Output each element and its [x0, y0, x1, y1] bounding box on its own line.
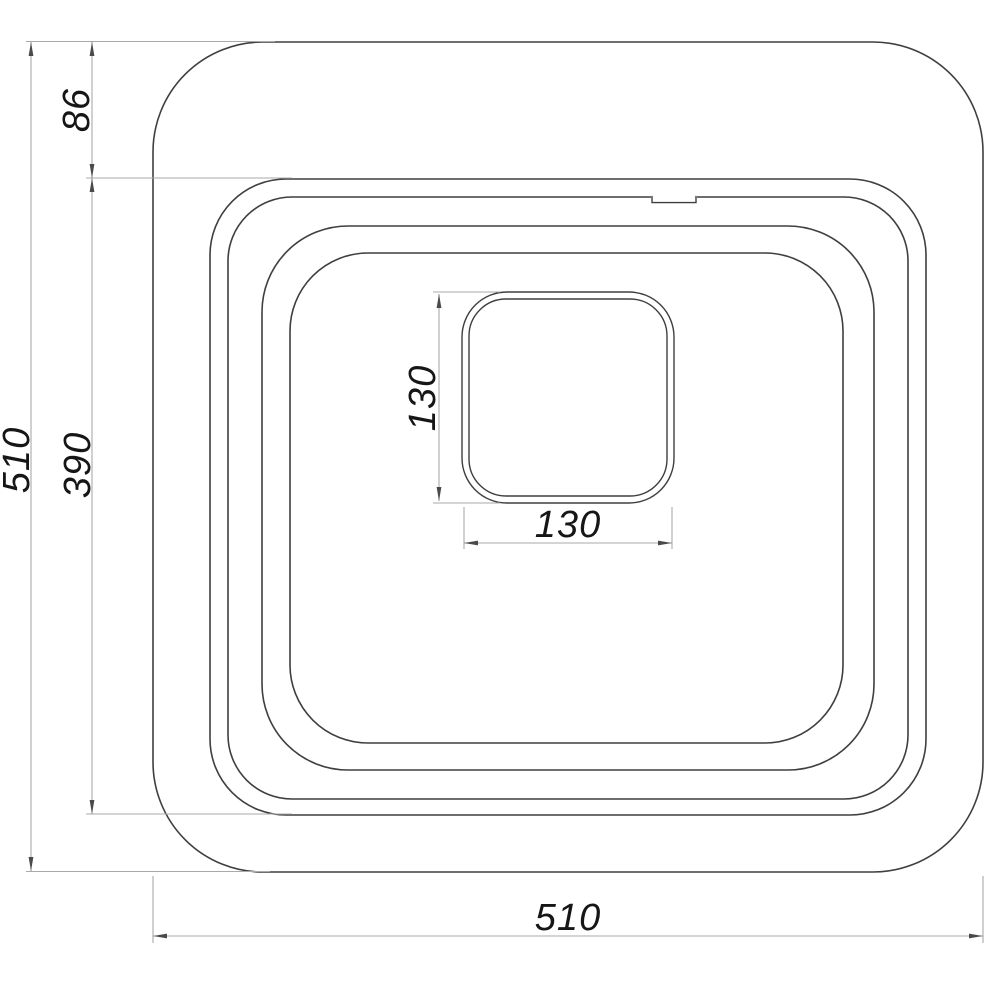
dim-label-drain-width: 130: [535, 504, 601, 546]
dimension-arrow: [29, 42, 34, 56]
dim-label-drain-height: 130: [402, 365, 444, 431]
dim-label-rim-height: 390: [57, 432, 99, 498]
drain-outer-outline: [462, 292, 674, 503]
dimension-arrow: [153, 934, 167, 939]
sink-outer-outline: [153, 42, 983, 872]
dimension-lines: [26, 42, 983, 944]
dimension-arrow: [658, 541, 672, 546]
dimension-arrow: [969, 934, 983, 939]
dimension-arrow: [437, 487, 442, 501]
dim-label-overall-height: 510: [0, 427, 38, 493]
bowl-outer-outline: [262, 226, 874, 770]
dim-label-overall-width: 510: [535, 897, 601, 939]
dimension-arrow: [90, 164, 95, 178]
dim-label-top-rim-offset: 86: [56, 88, 98, 132]
sink-technical-drawing: 510 86 390 130 130 510: [0, 0, 1000, 1000]
rim-inner-outline: [228, 197, 908, 799]
dimension-arrow: [90, 42, 95, 56]
dimension-arrows: [29, 42, 983, 938]
drain-inner-outline: [469, 299, 667, 496]
dimension-labels: 510 86 390 130 130 510: [0, 88, 601, 939]
dimension-arrow: [437, 294, 442, 308]
overflow-notch-mask: [651, 195, 697, 201]
sink-outlines: [153, 42, 983, 872]
bowl-inner-outline: [290, 253, 843, 743]
technical-drawing-page: 510 86 390 130 130 510: [0, 0, 1000, 1000]
dimension-arrow: [29, 857, 34, 871]
dimension-arrow: [90, 178, 95, 192]
dimension-arrow: [464, 541, 478, 546]
dimension-arrow: [90, 800, 95, 814]
